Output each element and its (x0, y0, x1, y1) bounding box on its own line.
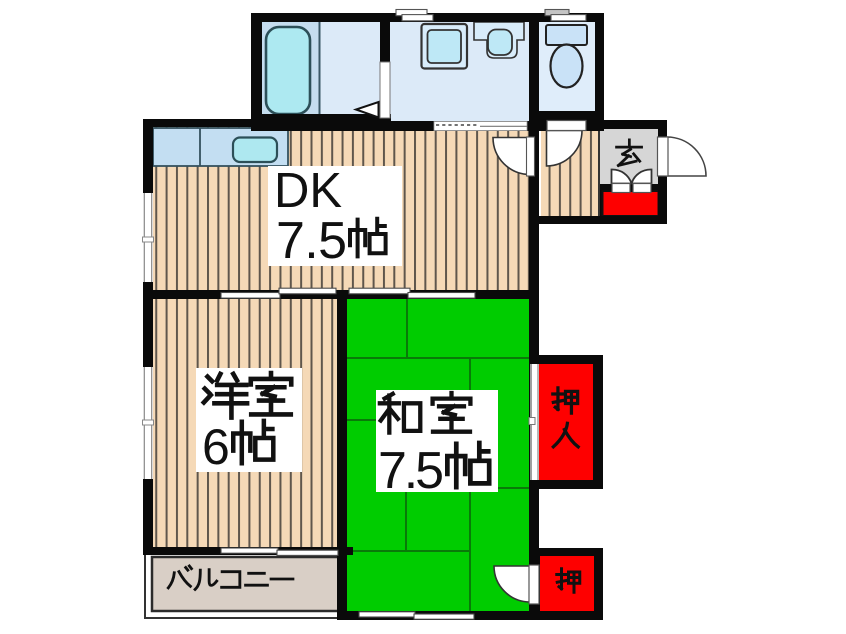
svg-text:6: 6 (202, 419, 230, 475)
svg-text:DK: DK (274, 164, 342, 218)
svg-text:7.5: 7.5 (378, 442, 444, 500)
svg-text:7.5: 7.5 (276, 212, 347, 270)
